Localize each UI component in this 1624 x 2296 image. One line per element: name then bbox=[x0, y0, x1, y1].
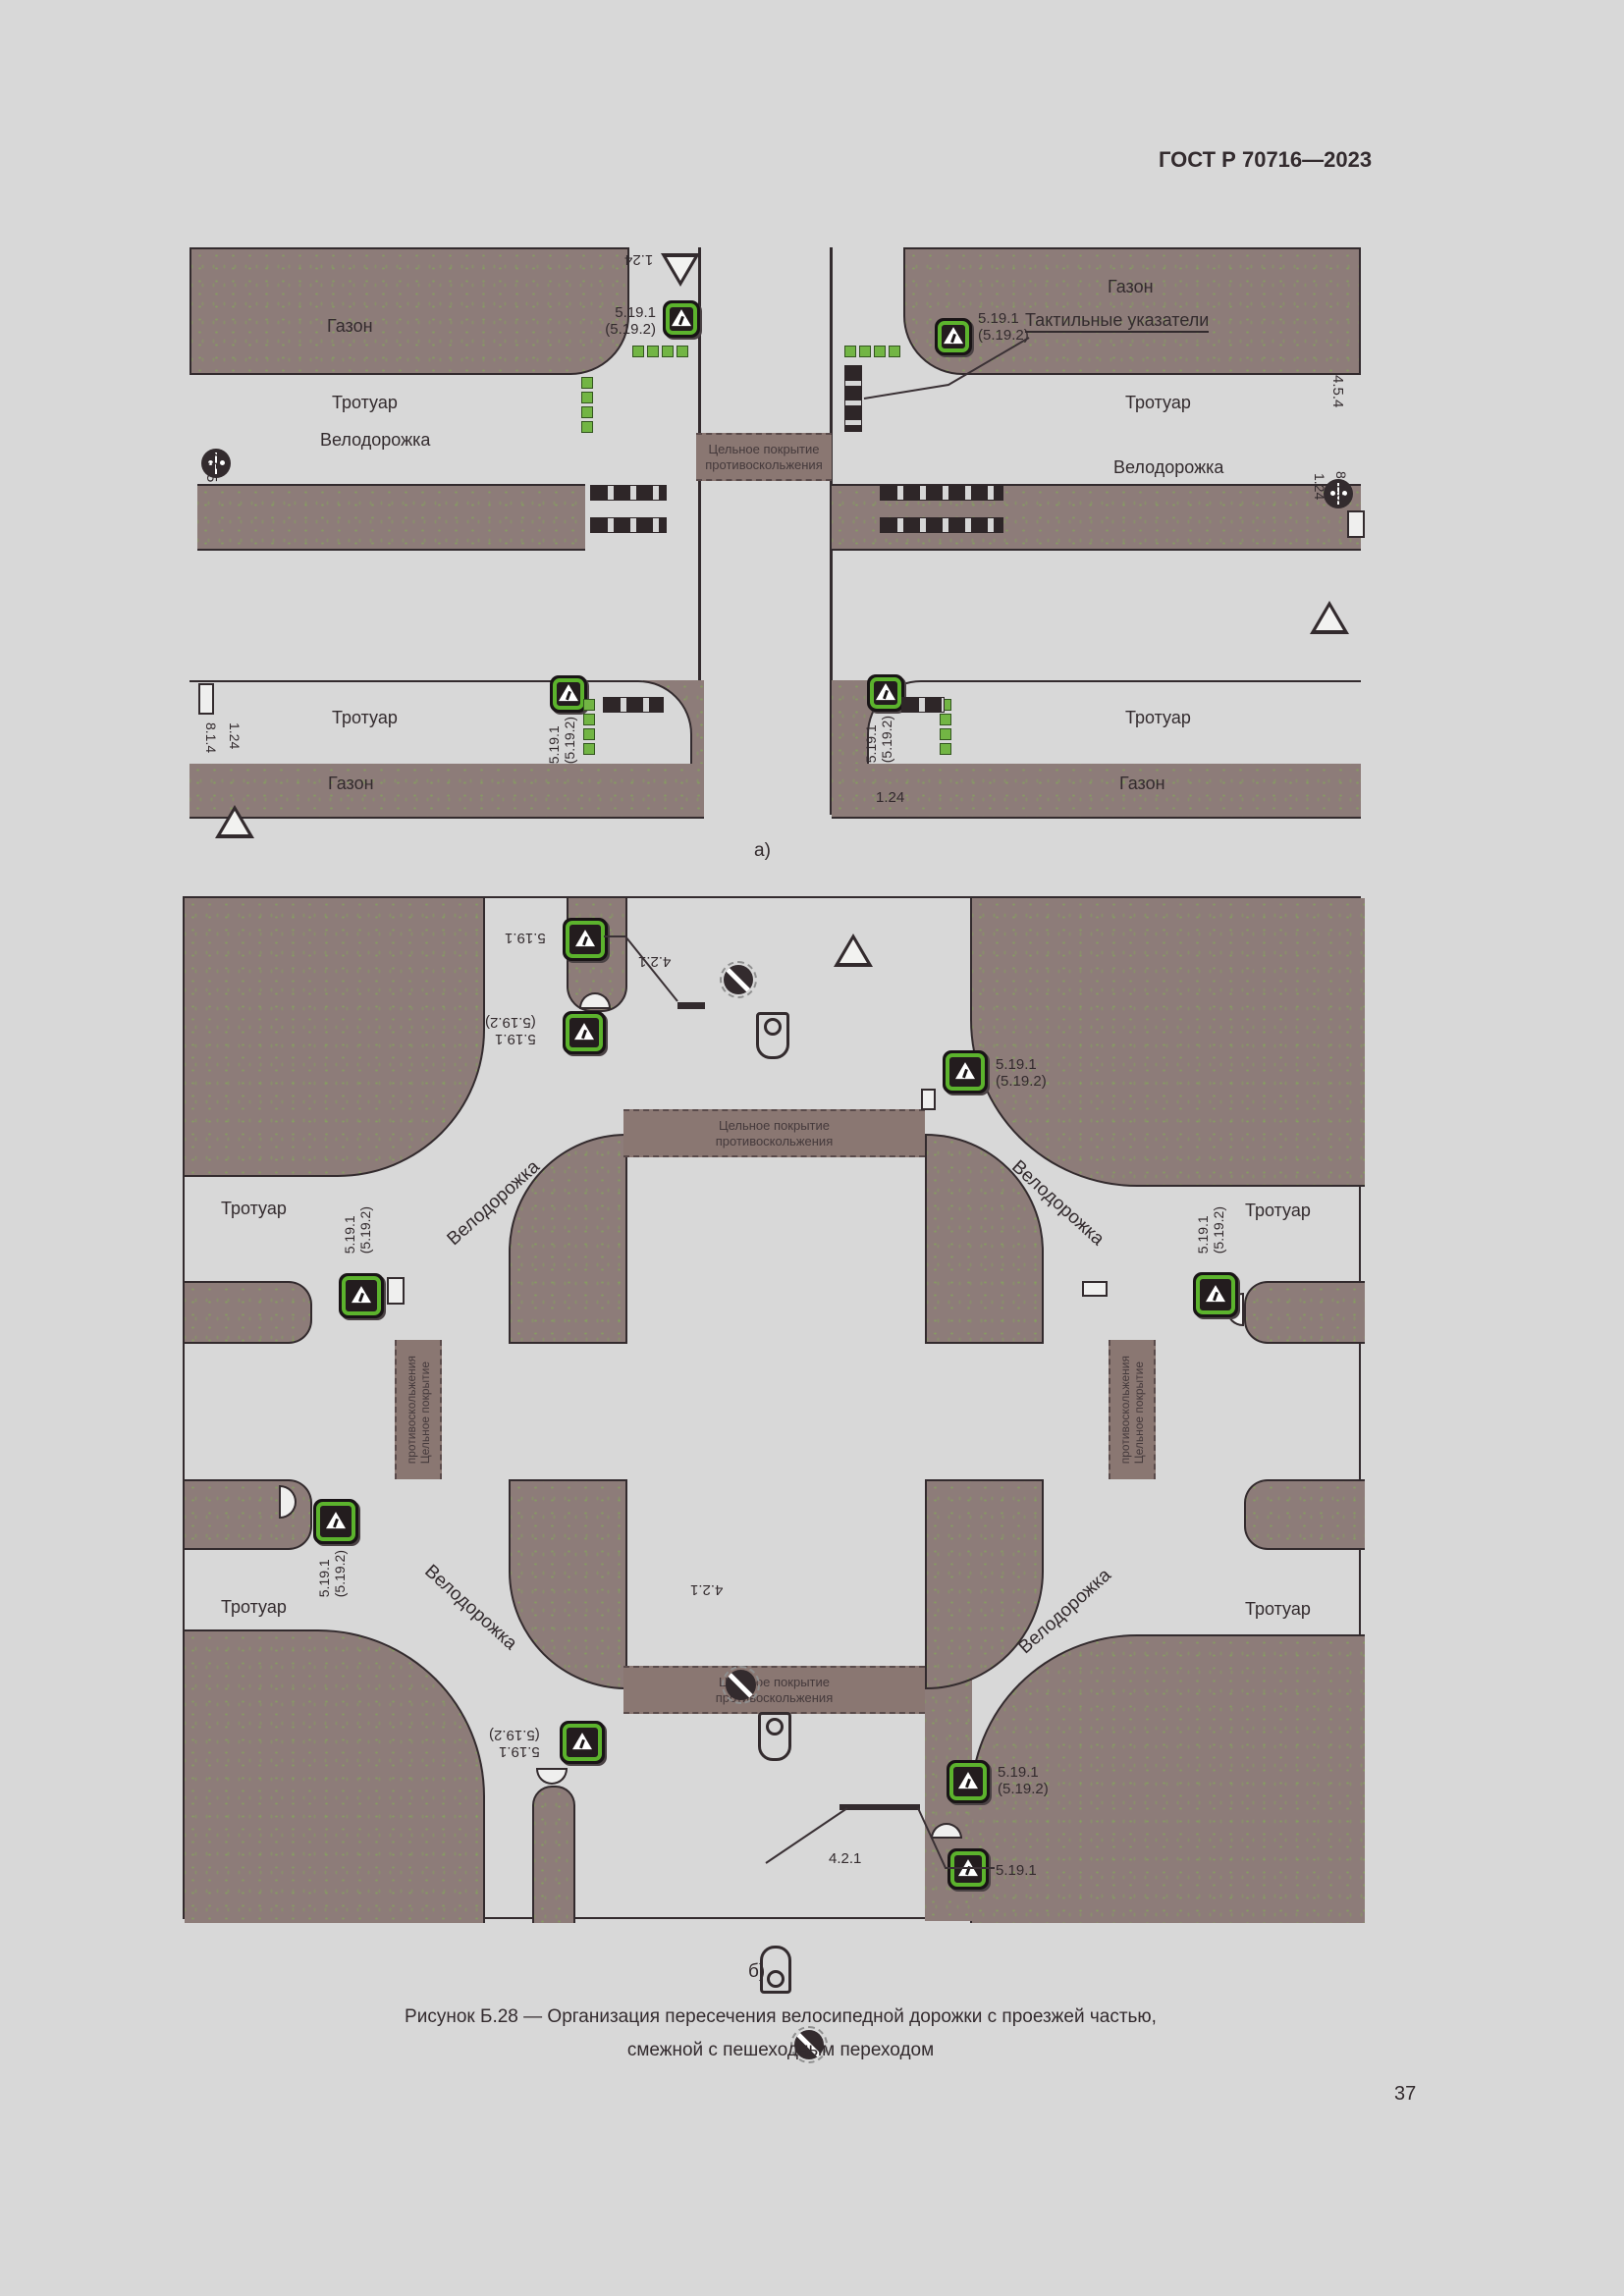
document-page: ГОСТ Р 70716—2023 Газон Газон Тактильные… bbox=[0, 0, 1624, 2296]
caption-line2: смежной с пешеходным переходом bbox=[236, 2034, 1326, 2067]
caption-line1: Рисунок Б.28 — Организация пересечения в… bbox=[236, 2001, 1326, 2034]
page-number: 37 bbox=[1394, 2083, 1416, 2106]
leader-lines bbox=[0, 0, 1624, 2296]
figure-caption: Рисунок Б.28 — Организация пересечения в… bbox=[236, 2001, 1326, 2067]
figure-b-label: б) bbox=[748, 1961, 765, 1983]
